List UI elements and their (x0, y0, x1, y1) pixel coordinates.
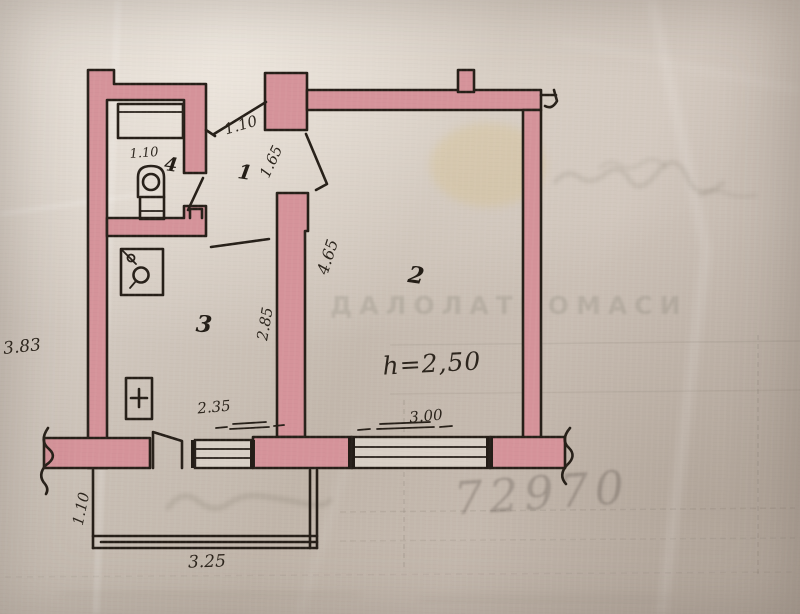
room-3-label: 3 (195, 310, 213, 338)
dim-room3-width: 2.35 (195, 397, 231, 418)
crease (0, 192, 160, 214)
dim-hall-room2-door: 1.65 (256, 143, 286, 181)
duct-hook-icon (541, 90, 557, 107)
wall-bottom-center (253, 437, 352, 468)
window-room2 (352, 437, 490, 468)
wall-entry-pier (265, 73, 307, 130)
dim-left-margin-note: 3.83 (2, 335, 42, 359)
wall-room2-top (307, 90, 541, 110)
dim-room2-window: 3.00 (408, 406, 443, 427)
faint-rule (390, 390, 800, 394)
room-1-label: 1 (236, 159, 254, 185)
faint-handwriting (555, 162, 723, 192)
scanned-paper: ДАЛОЛАТНОМАСИ 72970 (0, 0, 800, 614)
dim-entry-door: 1.10 (222, 112, 260, 139)
crease (560, 40, 800, 90)
faint-text-smudge (60, 594, 670, 600)
faint-rule (340, 538, 795, 541)
wall-bottom-right (490, 437, 565, 468)
stove-icon (126, 378, 152, 419)
balcony-door-leaf (153, 432, 182, 468)
room-4-label: 4 (163, 153, 179, 177)
wall-top-protrusion (458, 70, 474, 92)
wall-middle (277, 193, 308, 437)
wall-right (523, 110, 541, 442)
fixtures (121, 166, 164, 419)
dim-balcony-width: 3.25 (188, 551, 227, 572)
dim-balcony-depth: 1.10 (69, 490, 94, 527)
faint-rule (390, 341, 800, 345)
watermark-title: ДАЛОЛАТНОМАСИ (330, 291, 687, 320)
dim-room4-width: 1.10 (129, 145, 159, 162)
floor-plan-drawing: ДАЛОЛАТНОМАСИ 72970 (0, 0, 800, 614)
sink-icon (121, 249, 163, 295)
window-room4 (118, 104, 183, 138)
dim-ceiling-height: h=2,50 (382, 346, 482, 380)
room3-door-leaf (211, 239, 269, 247)
faint-handwriting (600, 159, 666, 168)
ticks-room3-window (216, 422, 284, 429)
window-room3 (195, 440, 252, 468)
dim-room2-left-wall: 4.65 (313, 237, 342, 278)
room2-door-leaf (306, 134, 327, 190)
watermark-number: 72970 (452, 460, 632, 526)
faint-signature (168, 496, 330, 509)
wall-bottom-left (44, 438, 150, 468)
room-2-label: 2 (405, 261, 426, 290)
balcony (93, 470, 317, 548)
faint-rule (5, 572, 795, 577)
labels: 1 2 3 4 1.10 1.10 1.65 4.65 2.85 2.35 3.… (2, 112, 482, 573)
dim-room3-right-wall: 2.85 (253, 306, 277, 343)
